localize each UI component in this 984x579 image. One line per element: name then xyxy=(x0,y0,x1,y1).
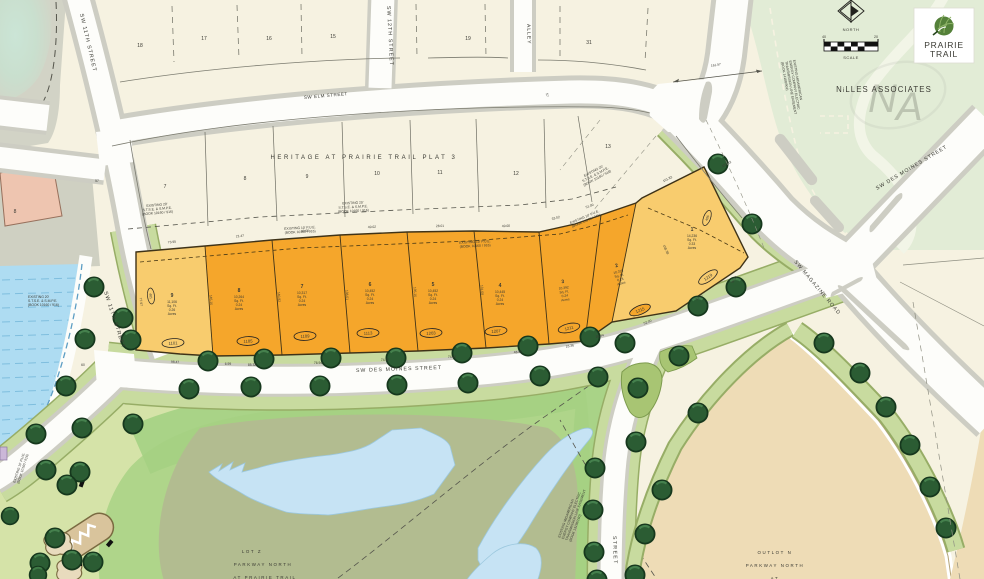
svg-text:TRAIL: TRAIL xyxy=(930,49,958,59)
svg-text:28.01: 28.01 xyxy=(436,224,445,228)
svg-text:31: 31 xyxy=(586,40,592,46)
svg-text:1101: 1101 xyxy=(168,340,178,346)
svg-text:4: 4 xyxy=(499,283,502,289)
svg-text:1207: 1207 xyxy=(491,328,501,334)
svg-text:60: 60 xyxy=(81,363,85,367)
svg-text:SCALE: SCALE xyxy=(843,55,859,60)
svg-text:ALLEY: ALLEY xyxy=(525,24,532,45)
svg-text:18: 18 xyxy=(137,43,143,49)
svg-text:131.08: 131.08 xyxy=(480,285,485,295)
svg-text:8: 8 xyxy=(238,288,241,294)
svg-text:85.32: 85.32 xyxy=(248,363,256,367)
svg-text:6.99: 6.99 xyxy=(225,362,232,366)
svg-text:1: 1 xyxy=(691,227,694,233)
svg-text:49.02: 49.02 xyxy=(368,225,377,229)
svg-text:LOT Z: LOT Z xyxy=(242,549,262,554)
svg-text:8: 8 xyxy=(14,209,17,215)
svg-text:57: 57 xyxy=(95,179,99,183)
svg-text:7: 7 xyxy=(301,284,304,290)
svg-text:401: 401 xyxy=(148,293,153,299)
svg-text:Acres: Acres xyxy=(429,301,438,305)
svg-text:1203: 1203 xyxy=(426,330,436,336)
svg-text:STREET: STREET xyxy=(611,536,618,565)
svg-text:8: 8 xyxy=(244,176,247,182)
svg-text:Acres: Acres xyxy=(688,246,697,250)
svg-text:N: N xyxy=(868,77,897,121)
svg-text:49.00: 49.00 xyxy=(502,224,511,228)
svg-text:9: 9 xyxy=(171,293,174,299)
svg-text:145.10: 145.10 xyxy=(209,295,214,305)
svg-text:7: 7 xyxy=(164,184,167,190)
svg-text:1109: 1109 xyxy=(300,333,310,338)
svg-text:21.47: 21.47 xyxy=(236,234,245,239)
svg-text:73.95: 73.95 xyxy=(168,240,177,245)
svg-text:40: 40 xyxy=(822,35,826,39)
svg-text:NiLLES ASSOCIATES: NiLLES ASSOCIATES xyxy=(836,85,932,94)
svg-text:AT PRAIRIE TRAIL: AT PRAIRIE TRAIL xyxy=(233,575,296,579)
svg-text:49.00: 49.00 xyxy=(301,229,310,234)
svg-text:138.01: 138.01 xyxy=(345,290,350,300)
svg-text:PARKWAY NORTH: PARKWAY NORTH xyxy=(746,563,805,568)
svg-text:10: 10 xyxy=(374,171,380,177)
svg-text:13: 13 xyxy=(605,144,611,150)
svg-text:20: 20 xyxy=(874,35,878,39)
svg-text:(BOOK 10160 / 916): (BOOK 10160 / 916) xyxy=(28,303,59,307)
svg-text:19: 19 xyxy=(465,36,471,42)
svg-text:PARKWAY NORTH: PARKWAY NORTH xyxy=(234,562,293,567)
svg-text:Acres: Acres xyxy=(168,312,177,316)
svg-text:Acres: Acres xyxy=(235,307,244,311)
svg-text:12: 12 xyxy=(513,171,519,177)
svg-text:9: 9 xyxy=(306,174,309,180)
svg-text:16: 16 xyxy=(266,36,272,42)
svg-text:135.10: 135.10 xyxy=(413,287,418,297)
svg-text:98.47: 98.47 xyxy=(171,360,180,364)
svg-text:15: 15 xyxy=(330,34,336,40)
svg-text:Acres: Acres xyxy=(496,302,505,306)
svg-text:74.12: 74.12 xyxy=(381,358,389,362)
svg-text:57: 57 xyxy=(545,93,549,97)
svg-text:74.12: 74.12 xyxy=(448,355,456,359)
svg-text:1113: 1113 xyxy=(364,330,374,335)
svg-text:NORTH: NORTH xyxy=(843,27,860,32)
svg-text:11: 11 xyxy=(437,170,442,176)
svg-text:Acres: Acres xyxy=(366,301,375,305)
svg-text:5: 5 xyxy=(432,282,435,288)
svg-text:140.92: 140.92 xyxy=(277,292,282,302)
svg-text:Acres: Acres xyxy=(298,303,307,307)
svg-text:OUTLOT N: OUTLOT N xyxy=(758,550,793,555)
svg-text:1105: 1105 xyxy=(243,338,253,343)
svg-text:76.94: 76.94 xyxy=(314,361,322,365)
svg-text:17: 17 xyxy=(201,36,207,42)
svg-text:HERITAGE AT PRAIRIE TRAIL PLAT: HERITAGE AT PRAIRIE TRAIL PLAT 3 xyxy=(270,155,457,161)
svg-text:6: 6 xyxy=(369,282,372,288)
